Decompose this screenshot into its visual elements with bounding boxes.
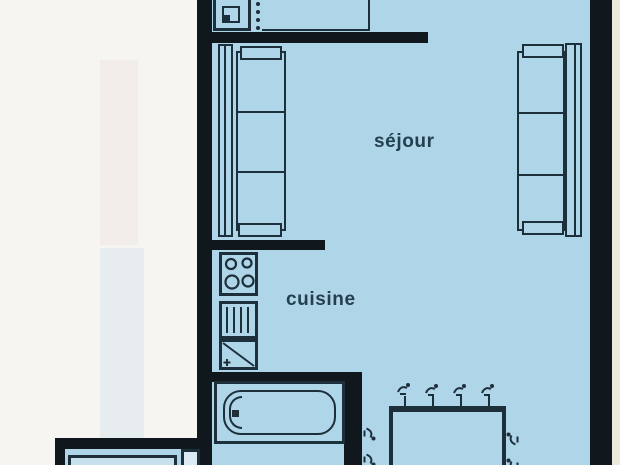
chair-icon <box>424 382 440 399</box>
wall-right <box>590 0 612 465</box>
chair-icon <box>396 381 412 398</box>
dining-table-icon <box>389 406 506 465</box>
chair-icon <box>361 427 378 443</box>
cabinet-icon <box>181 449 200 465</box>
hinge-dot-icon <box>256 26 260 30</box>
chair-icon <box>480 382 496 399</box>
sofa-seat <box>236 51 286 231</box>
bathtub-drain <box>232 410 239 417</box>
hinge-dot-icon <box>256 2 260 6</box>
sink-drainer-icon <box>219 301 258 339</box>
hinge-dot-icon <box>256 10 260 14</box>
wall-sejour-cuisine <box>212 240 325 250</box>
chair-icon <box>452 382 468 399</box>
exterior-left-margin <box>0 0 197 465</box>
washbasin-corner-mark <box>224 15 230 21</box>
sofa-armrest <box>522 221 564 235</box>
sofa-armrest <box>522 44 564 58</box>
chair-icon <box>505 457 522 465</box>
diagonal-mark <box>222 342 255 367</box>
room-label-cuisine: cuisine <box>286 289 356 311</box>
wall-top-sejour <box>212 32 428 43</box>
wall-bottomleft-top <box>55 438 197 449</box>
cooktop-4-burner-icon <box>219 252 258 296</box>
sofa-armrest <box>238 223 282 237</box>
sofa-3-seat-icon <box>218 44 233 237</box>
room-label-sejour: séjour <box>374 131 435 153</box>
floor-plan: séjour cuisine <box>0 0 620 465</box>
drainer-stripes <box>226 307 251 333</box>
partition-outline <box>262 0 370 31</box>
exterior-right-margin <box>612 0 620 465</box>
sofa-armrest <box>240 46 282 60</box>
wall-left <box>197 0 212 465</box>
cabinet-icon <box>68 455 177 465</box>
chair-icon <box>505 431 522 447</box>
hinge-dot-icon <box>256 18 260 22</box>
fridge-diagonal-icon <box>219 339 258 370</box>
burner-circles <box>222 255 255 293</box>
wall-bottomleft-left <box>55 438 65 465</box>
washbasin-bowl-icon <box>222 6 240 23</box>
chair-icon <box>361 453 378 465</box>
sofa-3-seat-icon <box>565 43 582 237</box>
sofa-seat <box>517 51 565 231</box>
wall-bathroom-right <box>344 380 362 465</box>
